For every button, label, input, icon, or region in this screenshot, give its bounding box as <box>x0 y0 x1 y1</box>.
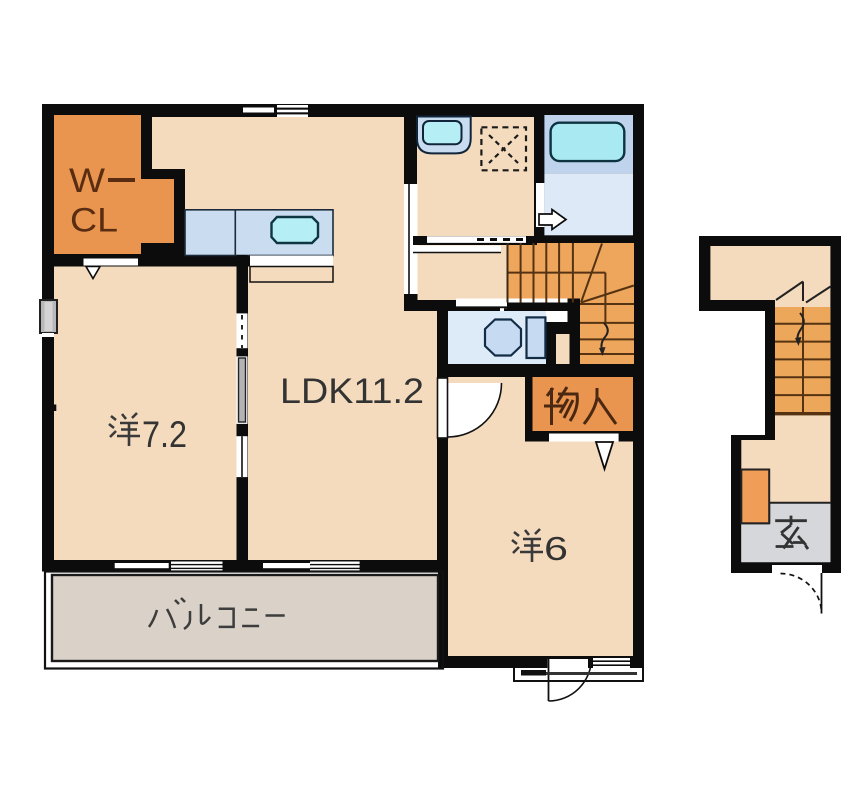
svg-text:7.2: 7.2 <box>142 414 187 455</box>
svg-text:CL: CL <box>70 202 118 240</box>
svg-text:LDK11.2: LDK11.2 <box>280 372 424 411</box>
svg-text:W: W <box>69 162 105 200</box>
svg-text:6: 6 <box>544 530 568 567</box>
